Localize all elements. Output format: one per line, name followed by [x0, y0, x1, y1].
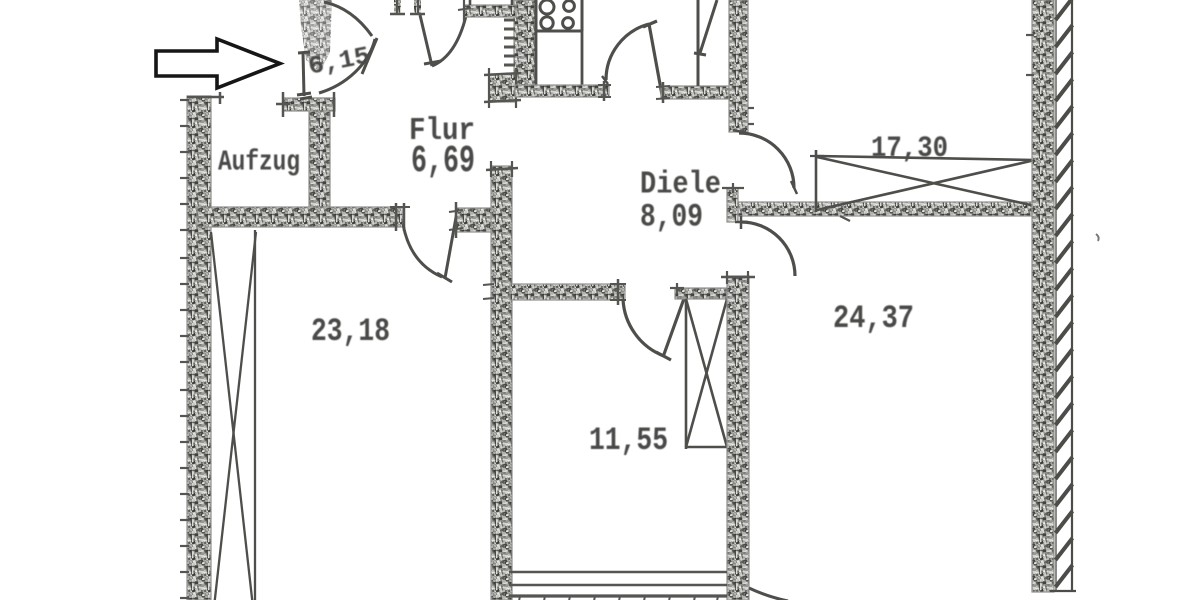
svg-text:23,18: 23,18 — [311, 314, 390, 350]
svg-text:6,69: 6,69 — [411, 140, 475, 183]
svg-text:24,37: 24,37 — [833, 301, 914, 337]
svg-text:17,30: 17,30 — [871, 132, 948, 166]
svg-text:Diele: Diele — [640, 167, 721, 203]
svg-text:11,55: 11,55 — [589, 423, 668, 459]
svg-text:Aufzug: Aufzug — [218, 146, 300, 179]
svg-text:8,09: 8,09 — [640, 200, 703, 236]
